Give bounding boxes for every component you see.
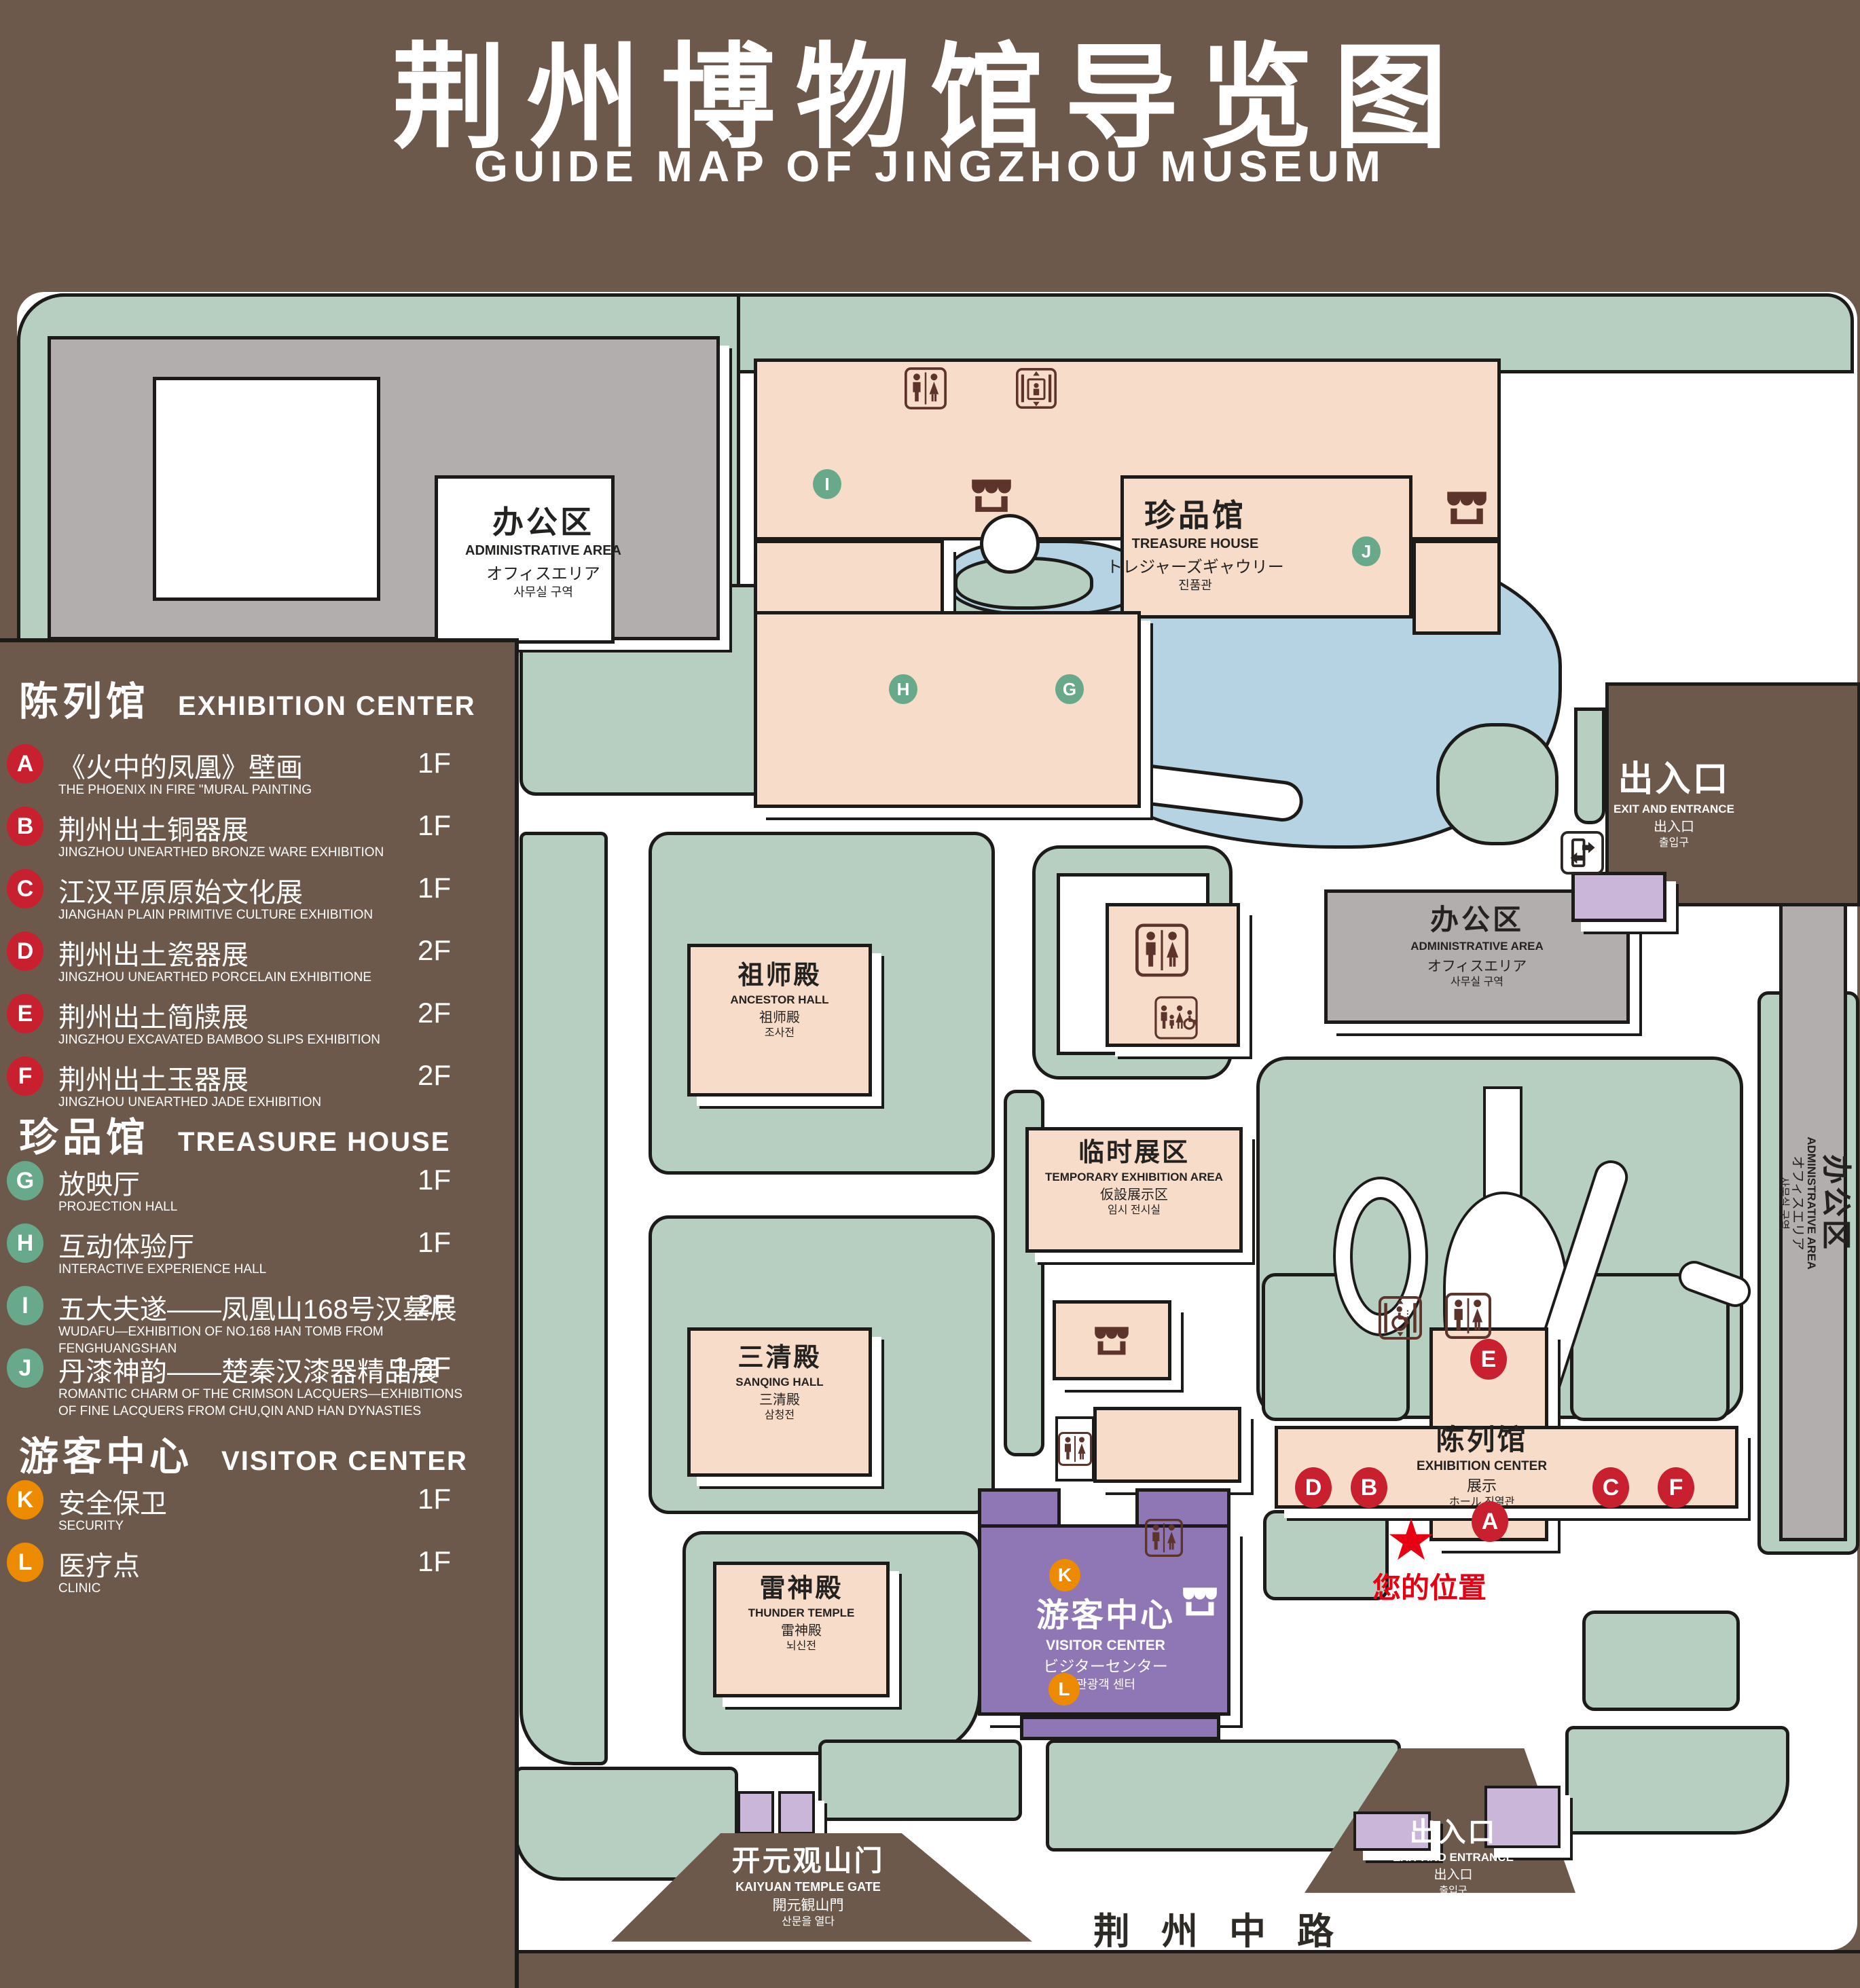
exhibition-label: 陈列馆 EXHIBITION CENTER 展示 ホール 진열관 [1360,1423,1604,1509]
legend-item-B: B荆州出土铜器展JINGZHOU UNEARTHED BRONZE WARE E… [7,807,498,865]
family-restroom-icon [1154,993,1198,1043]
temple-green-strip [519,832,608,1765]
road-label: 荆州中路 [1012,1901,1446,1955]
legend-panel: 陈列馆EXHIBITION CENTERA《火中的凤凰》壁画THE PHOENI… [0,638,519,1988]
visitor-center-arm-left [978,1488,1061,1529]
treasure-house-east [1412,540,1501,635]
exh-flank-br [1582,1610,1740,1711]
guide-map-poster: 荆州博物馆导览图 GUIDE MAP OF JINGZHOU MUSEUM [0,0,1860,1988]
kaiyuan-gate-label: 开元观山门 KAIYUAN TEMPLE GATE 開元観山門 산문을 열다 [652,1844,964,1928]
legend-section-title: 游客中心VISITOR CENTER [19,1424,468,1481]
legend-item-L: L医疗点CLINIC1F [7,1543,498,1601]
restroom-icon [1058,1423,1092,1475]
admin-mid-label: 办公区 ADMINISTRATIVE AREA オフィスエリア 사무실 구역 [1368,903,1586,989]
treasure-path-bulge [980,514,1040,574]
road-green-right [1565,1726,1789,1835]
exit-ne-label: 出入口 EXIT AND ENTRANCE 出入口 출입구 [1582,759,1766,850]
legend-item-K: K安全保卫SECURITY1F [7,1480,498,1539]
garden-path-top [1483,1086,1522,1202]
store-icon [1091,1319,1133,1361]
restroom-icon [1445,1285,1491,1347]
legend-item-I: I五大夫遂——凤凰山168号汉墓展WUDAFU—EXHIBITION OF NO… [7,1286,498,1344]
treasure-house-south [754,611,1141,808]
temp-exhibit-label: 临时展区 TEMPORARY EXHIBITION AREA 仮設展示区 임시 … [1025,1138,1243,1217]
thunder-temple-label: 雷神殿 THUNDER TEMPLE 雷神殿 뇌신전 [713,1574,890,1653]
legend-item-A: A《火中的凤凰》壁画THE PHOENIX IN FIRE "MURAL PAI… [7,744,498,803]
gate-pillar-right [778,1791,815,1835]
exit-icon [1561,825,1604,881]
exit-s-label: 出入口 EXIT AND ENTRANCE 出入口 출입구 [1365,1817,1542,1896]
legend-item-H: H互动体验厅INTERACTIVE EXPERIENCE HALL1F [7,1223,498,1282]
legend-item-E: E荆州出土简牍展JINGZHOU EXCAVATED BAMBOO SLIPS … [7,994,498,1052]
legend-item-D: D荆州出土瓷器展JINGZHOU UNEARTHED PORCELAIN EXH… [7,932,498,990]
elevator-icon [1016,363,1057,414]
store-icon [967,470,1016,519]
restroom-icon [1135,918,1188,982]
accessible-elevator-icon [1379,1289,1422,1347]
sanqing-hall-label: 三清殿 SANQING HALL 三清殿 삼청전 [687,1343,872,1422]
road-green-mid1 [818,1739,1022,1821]
store-icon [1442,482,1491,531]
legend-item-C: C江汉平原原始文化展JIANGHAN PLAIN PRIMITIVE CULTU… [7,869,498,927]
admin-courtyard-1 [153,377,380,601]
restroom-icon [905,362,947,415]
legend-section-title: 珍品馆TREASURE HOUSE [19,1105,450,1162]
legend-item-J: J丹漆神韵——楚秦汉漆器精品展ROMANTIC CHARM OF THE CRI… [7,1348,498,1407]
ancestor-hall-label: 祖师殿 ANCESTOR HALL 祖师殿 조사전 [687,961,872,1040]
your-location-star: ★ [1383,1511,1440,1568]
admin-strip-label: 办公区 ADMINISTRATIVE AREA オフィスエリア 사무실 구역 [1771,1027,1853,1380]
legend-item-G: G放映厅PROJECTION HALL1F [7,1161,498,1219]
admin-nw-label: 办公区 ADMINISTRATIVE AREA オフィスエリア 사무실 구역 [435,504,652,600]
gate-pillar-left [737,1791,774,1835]
store-icon [1179,1579,1221,1621]
temp-exhibit-south [1093,1407,1241,1483]
visitor-center-foot [1020,1716,1220,1740]
legend-section-title: 陈列馆EXHIBITION CENTER [19,669,476,726]
treasure-house-label: 珍品馆 TREASURE HOUSE トレジャーズギャウリー 진품관 [1073,497,1317,593]
pond-green-se [1436,723,1558,845]
restroom-icon [1145,1511,1183,1564]
your-location-label: 您的位置 [1348,1565,1511,1606]
